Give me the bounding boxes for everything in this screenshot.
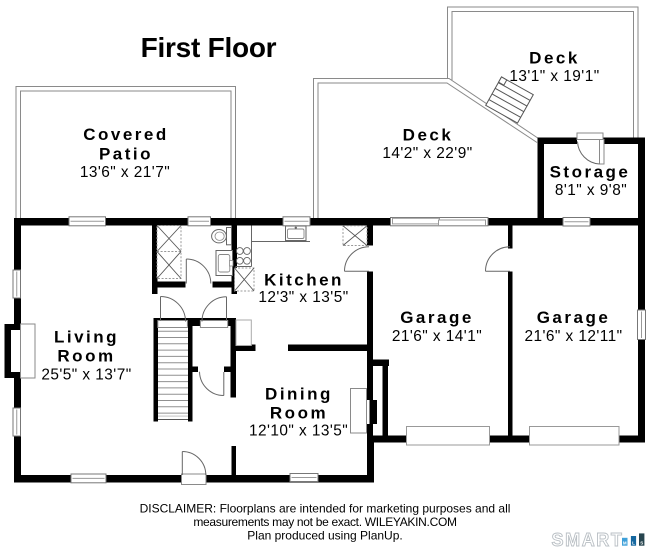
svg-text:12'10" x 13'5": 12'10" x 13'5" bbox=[249, 423, 348, 440]
svg-text:Garage: Garage bbox=[537, 308, 611, 327]
svg-text:Room: Room bbox=[57, 347, 115, 366]
svg-text:12'3" x 13'5": 12'3" x 13'5" bbox=[258, 289, 348, 306]
svg-text:Room: Room bbox=[270, 404, 328, 423]
svg-text:Deck: Deck bbox=[403, 126, 454, 145]
svg-text:Covered: Covered bbox=[83, 125, 169, 144]
svg-text:21'6" x 12'11": 21'6" x 12'11" bbox=[524, 328, 622, 345]
svg-text:Storage: Storage bbox=[550, 163, 631, 182]
svg-text:DISCLAIMER: Floorplans are int: DISCLAIMER: Floorplans are intended for … bbox=[140, 502, 511, 516]
svg-text:Kitchen: Kitchen bbox=[264, 271, 344, 290]
svg-text:13'6" x 21'7": 13'6" x 21'7" bbox=[80, 164, 170, 181]
svg-text:8'1" x 9'8": 8'1" x 9'8" bbox=[555, 182, 627, 199]
svg-text:S: S bbox=[640, 541, 643, 546]
svg-text:M: M bbox=[623, 541, 627, 546]
svg-text:Deck: Deck bbox=[529, 49, 580, 68]
svg-text:Patio: Patio bbox=[99, 145, 153, 164]
svg-text:13'1" x 19'1": 13'1" x 19'1" bbox=[509, 68, 599, 85]
svg-text:14'2" x 22'9": 14'2" x 22'9" bbox=[382, 145, 472, 162]
svg-text:25'5" x 13'7": 25'5" x 13'7" bbox=[41, 367, 131, 384]
svg-text:SMART: SMART bbox=[552, 530, 624, 550]
svg-text:21'6" x 14'1": 21'6" x 14'1" bbox=[392, 328, 482, 345]
svg-text:Living: Living bbox=[54, 328, 119, 347]
svg-text:Plan produced using PlanUp.: Plan produced using PlanUp. bbox=[247, 529, 402, 543]
svg-text:L: L bbox=[632, 541, 635, 546]
svg-text:measurements may not be exact.: measurements may not be exact. WILEYAKIN… bbox=[193, 515, 457, 529]
svg-text:Dining: Dining bbox=[265, 385, 333, 404]
svg-text:First Floor: First Floor bbox=[141, 32, 277, 63]
svg-text:Garage: Garage bbox=[400, 308, 474, 327]
